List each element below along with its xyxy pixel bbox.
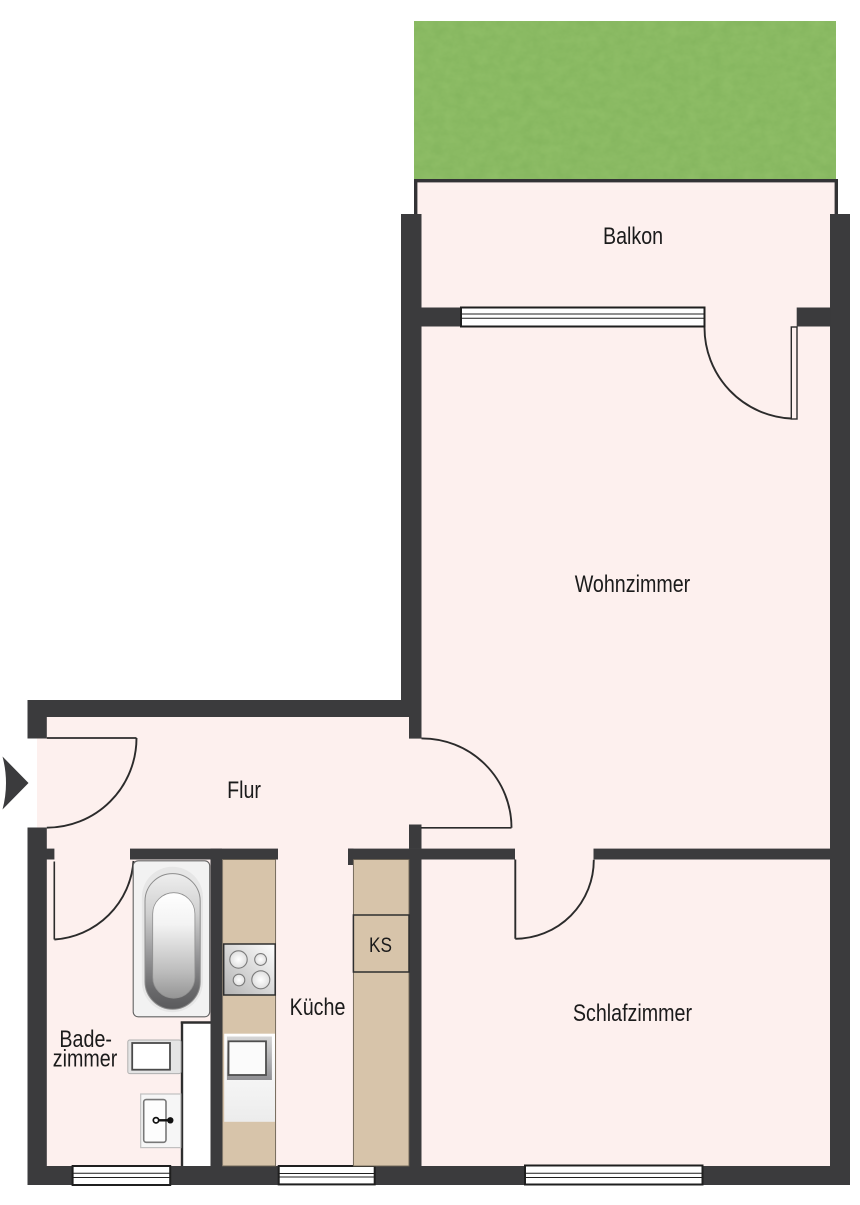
svg-text:Küche: Küche xyxy=(290,993,346,1020)
svg-text:KS: KS xyxy=(369,935,392,958)
svg-text:Balkon: Balkon xyxy=(603,222,663,249)
svg-text:zimmer: zimmer xyxy=(53,1044,117,1071)
svg-text:Flur: Flur xyxy=(227,776,261,803)
svg-text:Schlafzimmer: Schlafzimmer xyxy=(573,999,692,1026)
svg-text:Wohnzimmer: Wohnzimmer xyxy=(575,570,691,597)
